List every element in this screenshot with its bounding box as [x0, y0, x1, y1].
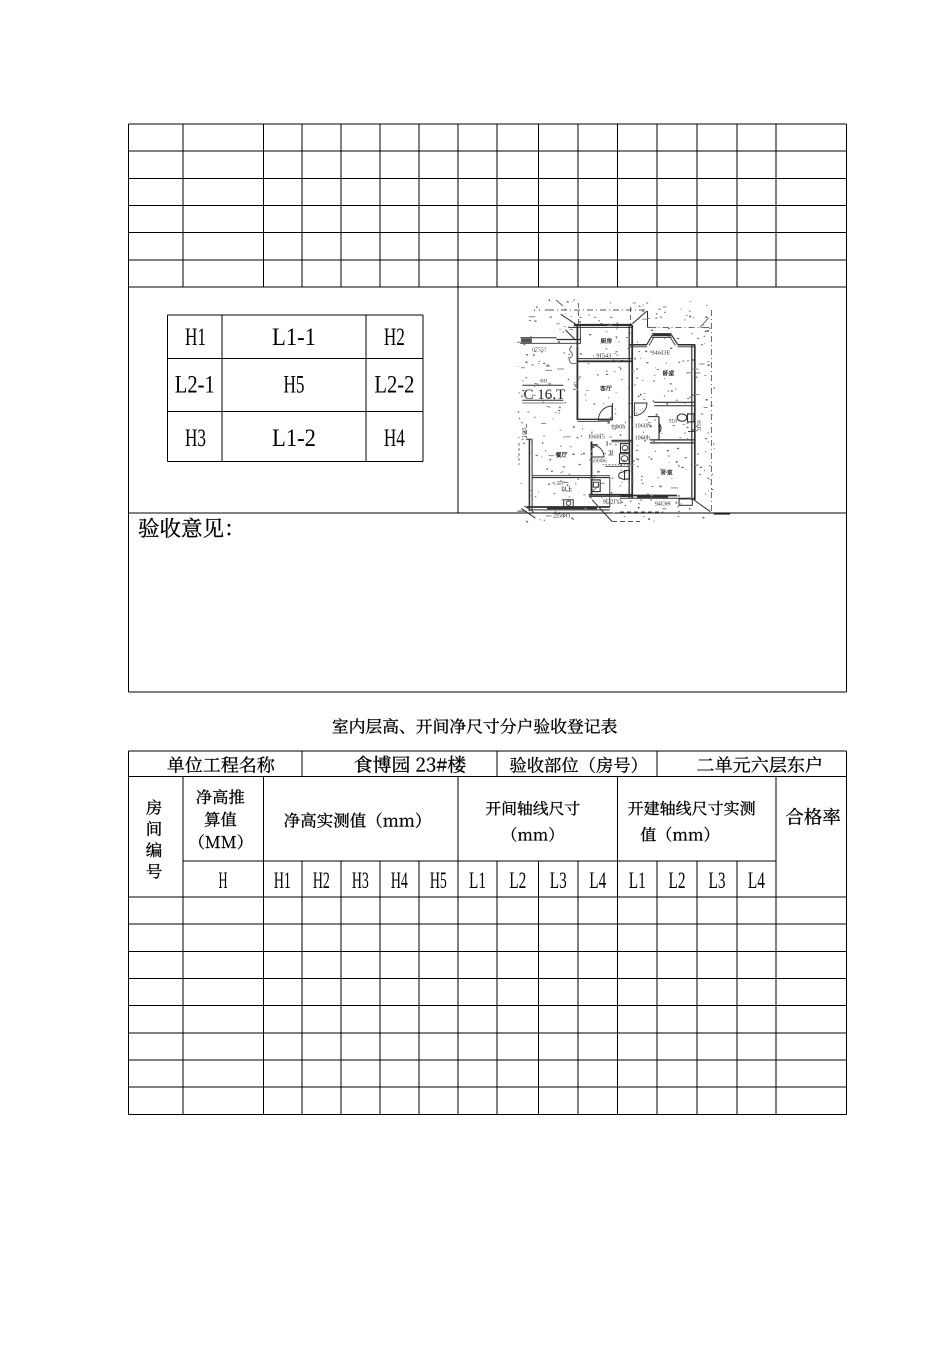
svg-text:L2: L2 — [669, 868, 686, 893]
svg-text:H5: H5 — [284, 370, 305, 399]
svg-text:L3: L3 — [709, 868, 726, 893]
svg-text:C 16.T: C 16.T — [524, 387, 566, 403]
svg-text:2Ι5ΦΟ: 2Ι5ΦΟ — [553, 512, 571, 519]
svg-text:L1-2: L1-2 — [272, 423, 316, 452]
svg-text:μ: μ — [521, 394, 524, 399]
svg-text:H1: H1 — [185, 322, 206, 351]
svg-text:946Ι3Ε: 946Ι3Ε — [651, 350, 670, 357]
svg-text:H3: H3 — [185, 423, 206, 452]
svg-text:H5: H5 — [430, 868, 447, 893]
svg-text:94Ι3Θ: 94Ι3Θ — [655, 501, 671, 508]
svg-text:1060Ν: 1060Ν — [635, 422, 652, 429]
svg-text:H1: H1 — [274, 868, 291, 893]
svg-text:Ι060Ϊ5: Ι060Ϊ5 — [588, 433, 605, 440]
svg-text:3Ι50: 3Ι50 — [697, 420, 703, 431]
svg-text:L4: L4 — [589, 868, 606, 893]
svg-text:ΦΗ: ΦΗ — [540, 380, 548, 385]
svg-text:L1: L1 — [629, 868, 646, 893]
svg-text:H4: H4 — [391, 868, 408, 893]
svg-text:H4: H4 — [384, 423, 405, 452]
svg-text:9Σ0: 9Σ0 — [669, 419, 678, 425]
svg-text:0755?: 0755? — [532, 348, 547, 354]
svg-text:9Ω2ΓΩ: 9Ω2ΓΩ — [603, 498, 622, 505]
svg-text:9Ι543: 9Ι543 — [596, 353, 611, 360]
svg-text:L2-1: L2-1 — [175, 370, 215, 399]
svg-text:L2-2: L2-2 — [374, 370, 414, 399]
svg-text:H2: H2 — [384, 322, 405, 351]
svg-text:2Φ0h: 2Φ0h — [612, 424, 627, 431]
svg-text:L4: L4 — [748, 868, 765, 893]
svg-text:H: H — [219, 868, 228, 893]
svg-text:H3: H3 — [352, 868, 369, 893]
svg-text:H2: H2 — [313, 868, 330, 893]
svg-text:L3: L3 — [550, 868, 567, 893]
svg-text:600Φ6: 600Φ6 — [591, 458, 607, 464]
svg-text:L1-1: L1-1 — [272, 322, 316, 351]
svg-text:L2: L2 — [509, 868, 526, 893]
svg-text:L1: L1 — [469, 868, 486, 893]
